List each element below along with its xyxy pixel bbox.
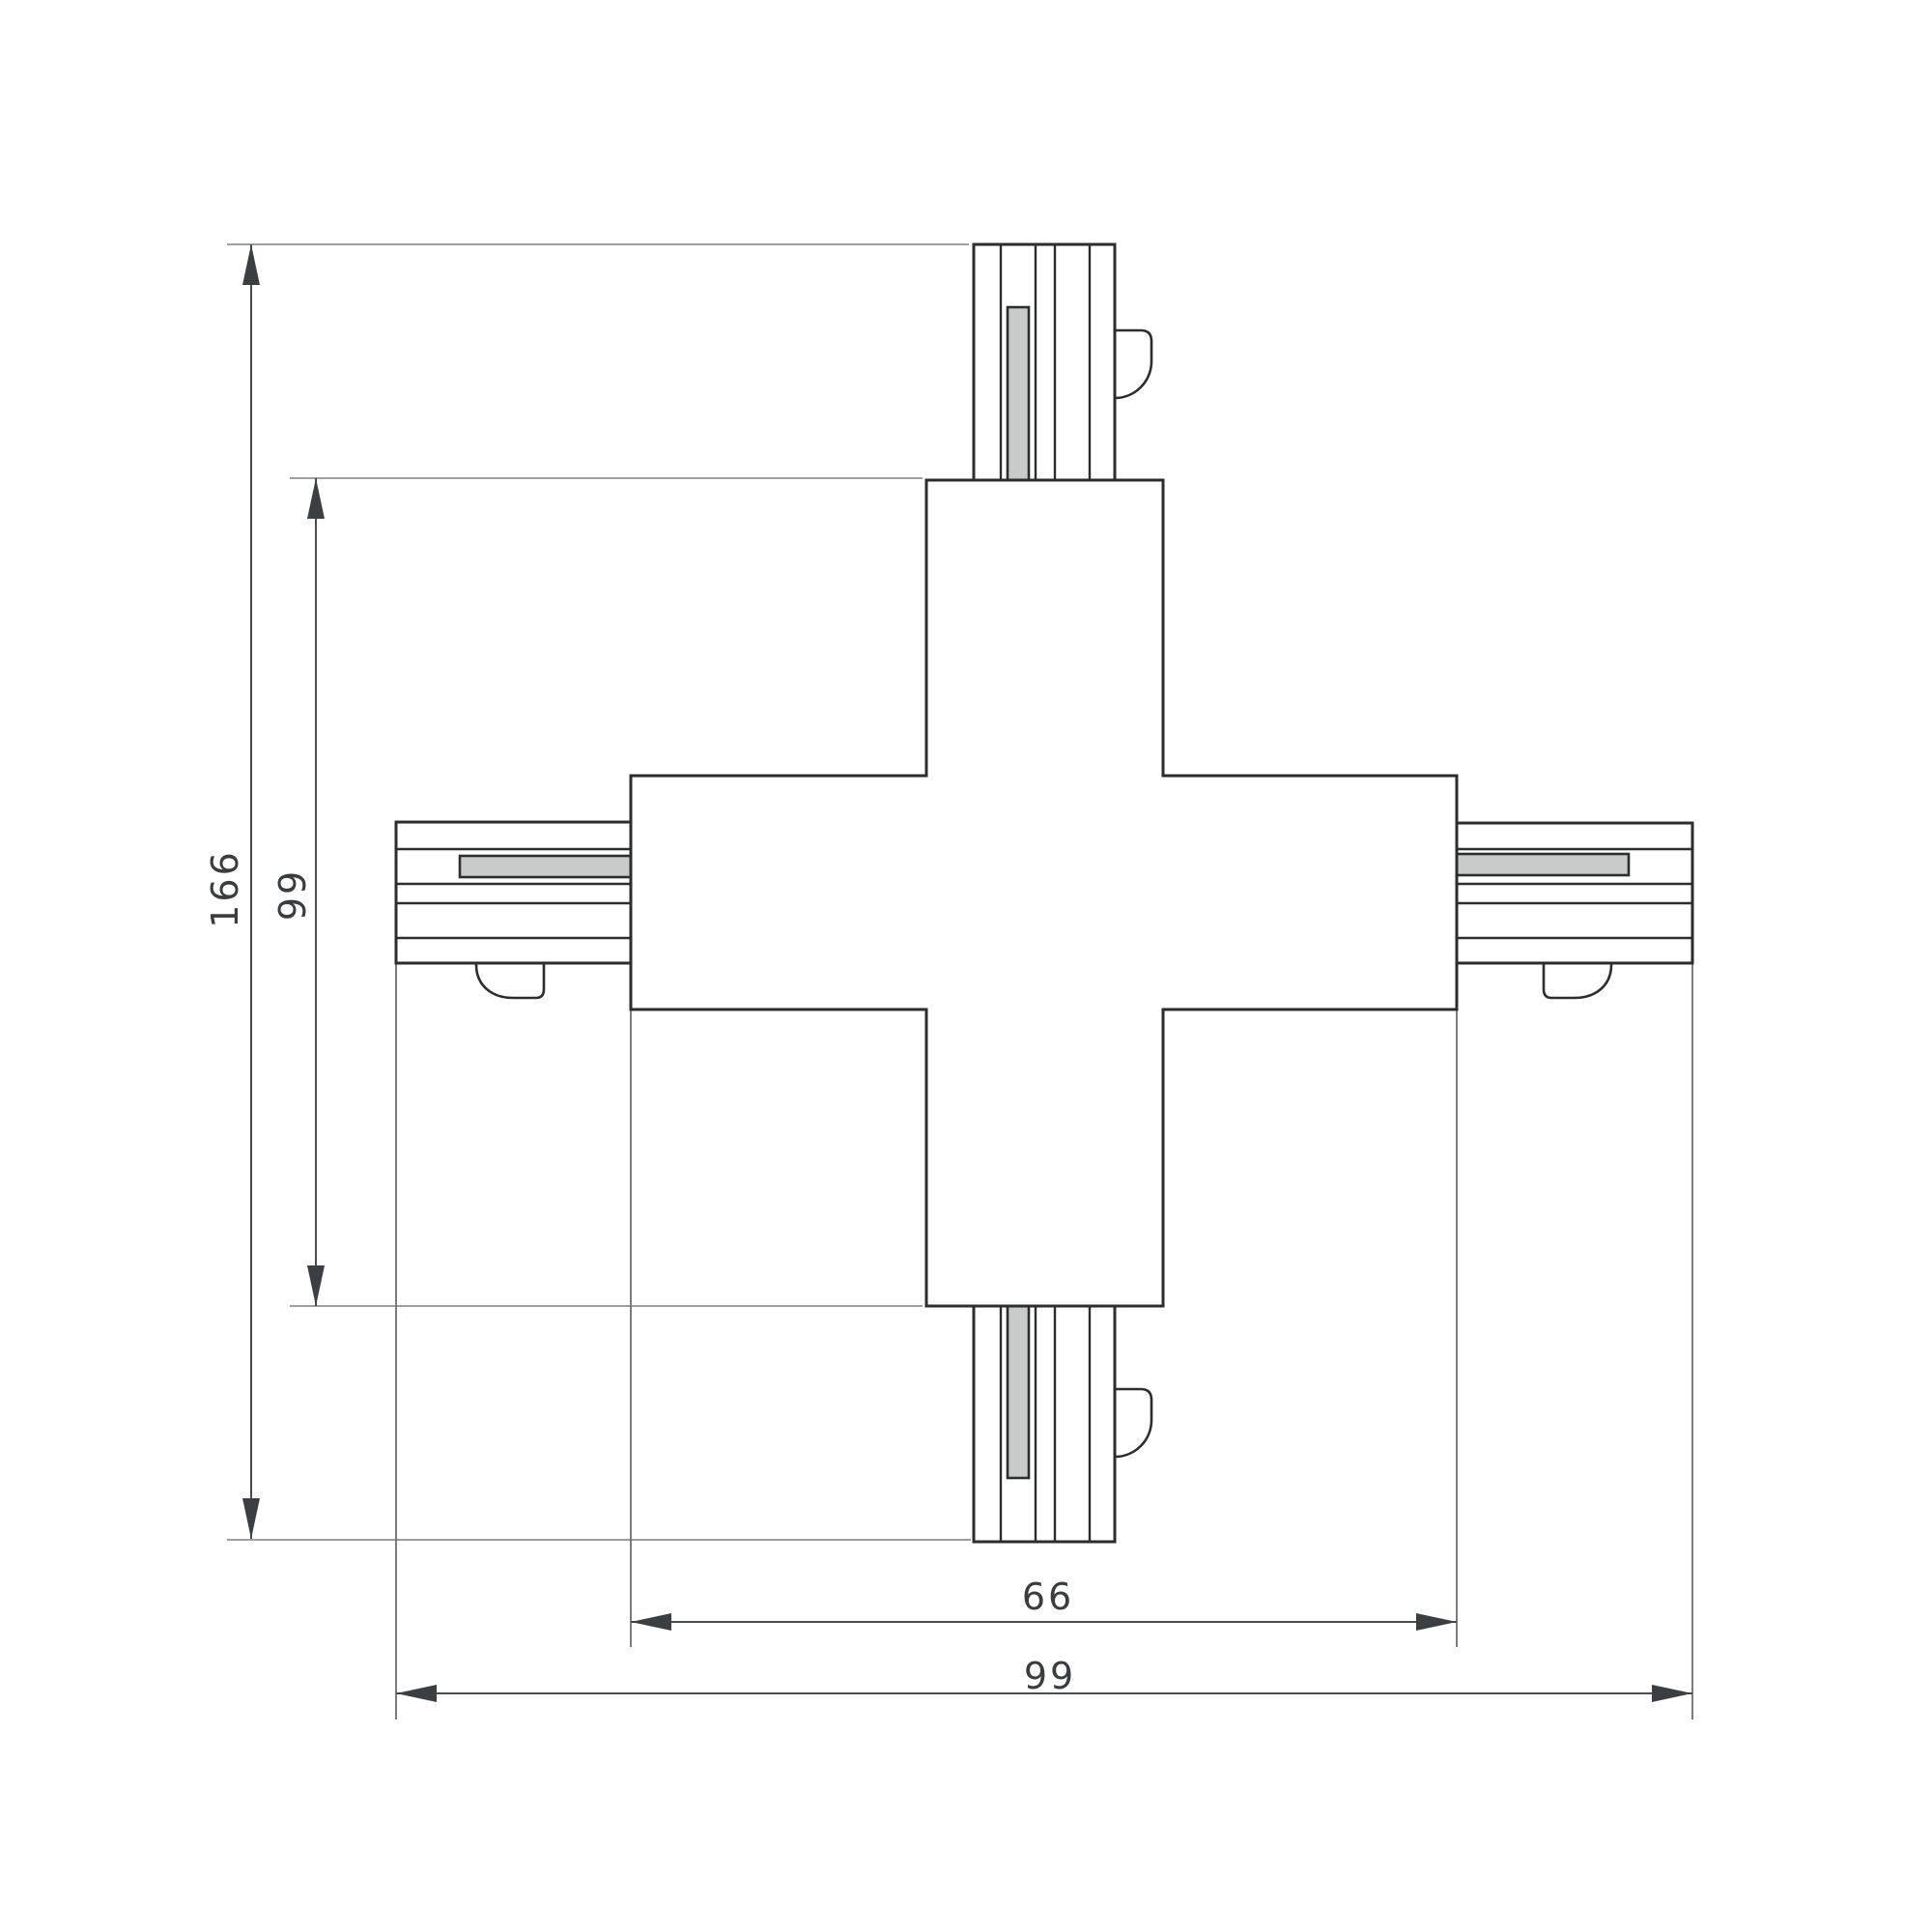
dimension-label-overall-length: 166 [204,849,246,928]
coupler-body [974,244,1115,480]
dimension-label-overall-width: 99 [1024,1655,1076,1697]
dimension-label-body-length: 99 [271,868,314,921]
drawing-canvas: 166 99 66 99 [0,0,1932,1932]
coupler-body [1457,823,1692,963]
conductor-slot [1457,854,1629,875]
track-connector-technical-drawing: 166 99 66 99 [0,0,1932,1932]
coupler-body [974,1306,1115,1542]
dimension-label-body-width: 66 [1022,1576,1074,1618]
coupler-body [396,822,631,963]
conductor-slot [460,856,631,877]
conductor-slot [1008,307,1029,480]
conductor-slot [1008,1306,1029,1478]
